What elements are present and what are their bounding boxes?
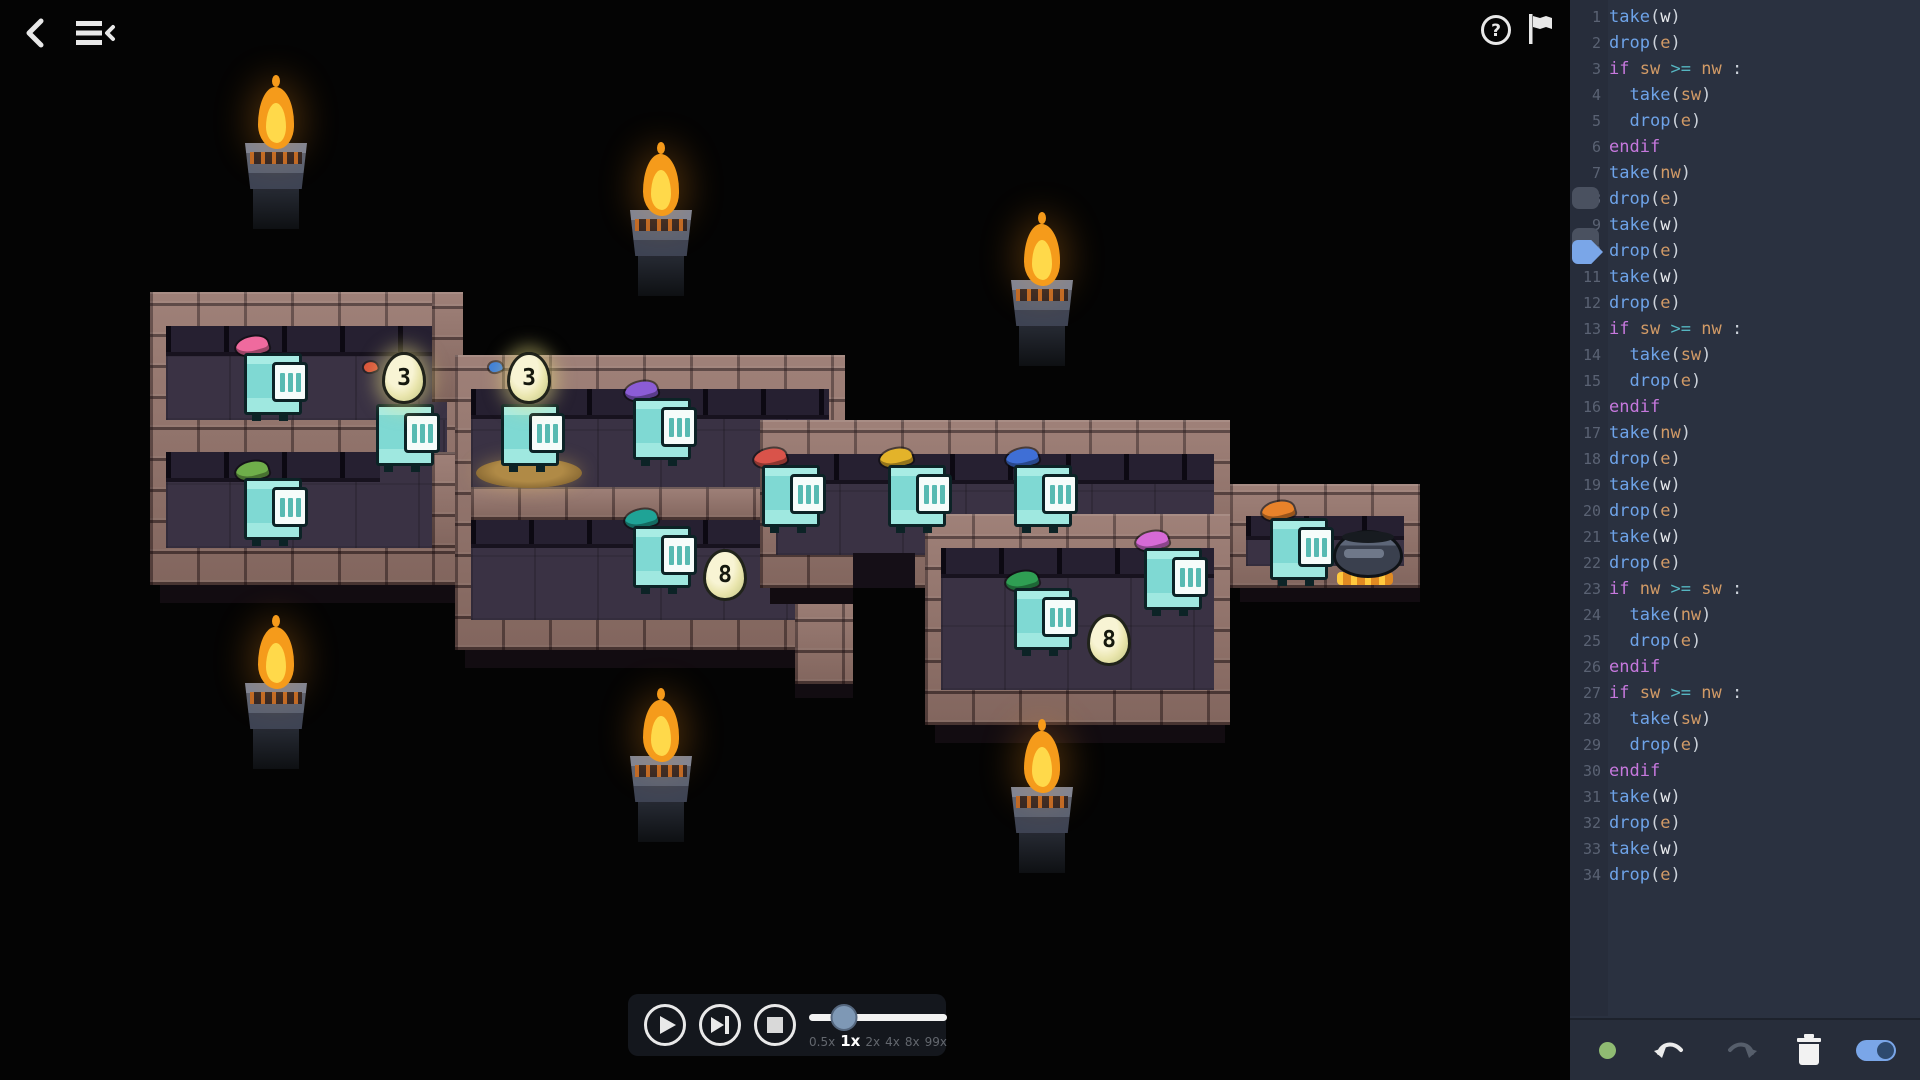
robot-body bbox=[1270, 518, 1328, 580]
code-line-26[interactable]: 26endif bbox=[1570, 654, 1920, 680]
code-text: drop(e) bbox=[1609, 186, 1681, 212]
torch-flame-icon bbox=[643, 700, 679, 762]
code-line-29[interactable]: 29 drop(e) bbox=[1570, 732, 1920, 758]
line-number: 20 bbox=[1570, 498, 1609, 524]
numbered-egg: 8 bbox=[703, 549, 747, 601]
code-text: endif bbox=[1609, 134, 1660, 160]
code-text: drop(e) bbox=[1609, 628, 1701, 654]
code-line-15[interactable]: 15 drop(e) bbox=[1570, 368, 1920, 394]
code-text: take(w) bbox=[1609, 472, 1681, 498]
line-number: 2 bbox=[1570, 30, 1609, 56]
code-line-5[interactable]: 5 drop(e) bbox=[1570, 108, 1920, 134]
game-scene: 3 3 bbox=[0, 0, 1570, 1080]
robot-face bbox=[661, 407, 697, 447]
robot-face bbox=[529, 413, 565, 453]
torch-brazier bbox=[1004, 719, 1080, 884]
code-line-8[interactable]: 8drop(e) bbox=[1570, 186, 1920, 212]
help-button[interactable]: ? bbox=[1479, 13, 1513, 51]
code-line-23[interactable]: 23if nw >= sw : bbox=[1570, 576, 1920, 602]
line-number: 28 bbox=[1570, 706, 1609, 732]
robot-body bbox=[244, 478, 302, 540]
code-line-14[interactable]: 14 take(sw) bbox=[1570, 342, 1920, 368]
robot-body bbox=[376, 404, 434, 466]
playback-bar: 0.5x1x2x4x8x99x bbox=[628, 994, 946, 1056]
torch-brazier bbox=[1004, 212, 1080, 377]
code-line-13[interactable]: 13if sw >= nw : bbox=[1570, 316, 1920, 342]
robot-face bbox=[916, 474, 952, 514]
robot-body bbox=[244, 353, 302, 415]
code-text: endif bbox=[1609, 394, 1660, 420]
carried-egg: 3 bbox=[382, 352, 426, 404]
code-line-11[interactable]: 11take(w) bbox=[1570, 264, 1920, 290]
code-text: drop(e) bbox=[1609, 550, 1681, 576]
code-text: take(sw) bbox=[1609, 342, 1711, 368]
code-line-12[interactable]: 12drop(e) bbox=[1570, 290, 1920, 316]
torch-pedestal bbox=[638, 802, 684, 842]
code-text: take(w) bbox=[1609, 784, 1681, 810]
line-number: 30 bbox=[1570, 758, 1609, 784]
line-number: 19 bbox=[1570, 472, 1609, 498]
torch-brazier bbox=[238, 615, 314, 780]
robot[interactable] bbox=[240, 337, 304, 423]
code-panel: 1take(w)2drop(e)3if sw >= nw :4 take(sw)… bbox=[1570, 0, 1920, 1080]
code-text: endif bbox=[1609, 654, 1660, 680]
code-text: take(sw) bbox=[1609, 706, 1711, 732]
speed-slider[interactable] bbox=[809, 1014, 947, 1021]
redo-icon bbox=[1724, 1037, 1758, 1063]
speed-option-0.5x[interactable]: 0.5x bbox=[809, 1035, 835, 1049]
robot-position-marker bbox=[1572, 187, 1599, 209]
wall-shadow bbox=[465, 650, 845, 668]
line-number: 15 bbox=[1570, 368, 1609, 394]
wall-shadow bbox=[160, 585, 460, 603]
torch-pedestal bbox=[1019, 833, 1065, 873]
torch-spark bbox=[1038, 719, 1046, 731]
robot-face bbox=[790, 474, 826, 514]
robot-face bbox=[272, 362, 308, 402]
code-text: drop(e) bbox=[1609, 862, 1681, 888]
robot[interactable] bbox=[1010, 449, 1074, 535]
torch-pedestal bbox=[253, 729, 299, 769]
status-indicator bbox=[1595, 1038, 1620, 1063]
robot[interactable] bbox=[758, 449, 822, 535]
code-text: endif bbox=[1609, 758, 1660, 784]
speed-option-1x[interactable]: 1x bbox=[840, 1032, 860, 1050]
code-text: if nw >= sw : bbox=[1609, 576, 1742, 602]
line-number: 13 bbox=[1570, 316, 1609, 342]
line-number: 29 bbox=[1570, 732, 1609, 758]
robot-body bbox=[1014, 465, 1072, 527]
step-icon bbox=[711, 1017, 724, 1033]
code-text: take(nw) bbox=[1609, 602, 1711, 628]
code-text: take(sw) bbox=[1609, 82, 1711, 108]
code-line-27[interactable]: 27if sw >= nw : bbox=[1570, 680, 1920, 706]
line-number: 31 bbox=[1570, 784, 1609, 810]
torch-flame-icon bbox=[1024, 731, 1060, 793]
code-line-22[interactable]: 22drop(e) bbox=[1570, 550, 1920, 576]
torch-spark bbox=[1038, 212, 1046, 224]
dungeon-bench bbox=[471, 520, 760, 548]
code-line-18[interactable]: 18drop(e) bbox=[1570, 446, 1920, 472]
torch-basin bbox=[1009, 787, 1075, 833]
code-text: drop(e) bbox=[1609, 290, 1681, 316]
code-line-2[interactable]: 2drop(e) bbox=[1570, 30, 1920, 56]
line-number: 23 bbox=[1570, 576, 1609, 602]
code-text: take(nw) bbox=[1609, 420, 1691, 446]
redo-button[interactable] bbox=[1720, 1033, 1762, 1067]
speed-labels: 0.5x1x2x4x8x99x bbox=[809, 1032, 947, 1050]
dungeon-bench bbox=[776, 454, 1214, 484]
robot[interactable] bbox=[1010, 572, 1074, 658]
line-number: 27 bbox=[1570, 680, 1609, 706]
line-number: 33 bbox=[1570, 836, 1609, 862]
flag-button[interactable] bbox=[1526, 12, 1556, 52]
robot-body bbox=[1014, 588, 1072, 650]
code-line-17[interactable]: 17take(nw) bbox=[1570, 420, 1920, 446]
robot-face bbox=[404, 413, 440, 453]
torch-basin bbox=[628, 210, 694, 256]
code-line-28[interactable]: 28 take(sw) bbox=[1570, 706, 1920, 732]
line-number: 6 bbox=[1570, 134, 1609, 160]
code-text: take(w) bbox=[1609, 4, 1681, 30]
robot-body bbox=[1144, 548, 1202, 610]
robot-body bbox=[633, 398, 691, 460]
code-line-1[interactable]: 1take(w) bbox=[1570, 4, 1920, 30]
torch-pedestal bbox=[253, 189, 299, 229]
robot[interactable] bbox=[629, 382, 693, 468]
line-number: 24 bbox=[1570, 602, 1609, 628]
code-line-7[interactable]: 7take(nw) bbox=[1570, 160, 1920, 186]
torch-brazier bbox=[623, 142, 699, 307]
line-number: 14 bbox=[1570, 342, 1609, 368]
line-number: 21 bbox=[1570, 524, 1609, 550]
code-line-24[interactable]: 24 take(nw) bbox=[1570, 602, 1920, 628]
wall-shadow bbox=[935, 725, 1225, 743]
speed-slider-knob[interactable] bbox=[830, 1004, 857, 1031]
torch-spark bbox=[657, 688, 665, 700]
line-number: 5 bbox=[1570, 108, 1609, 134]
svg-text:?: ? bbox=[1491, 21, 1501, 41]
numbered-egg: 8 bbox=[1087, 614, 1131, 666]
line-number: 3 bbox=[1570, 56, 1609, 82]
code-text: drop(e) bbox=[1609, 238, 1681, 264]
code-text: if sw >= nw : bbox=[1609, 56, 1742, 82]
torch-flame-icon bbox=[643, 154, 679, 216]
robot[interactable] bbox=[884, 449, 948, 535]
code-text: take(w) bbox=[1609, 836, 1681, 862]
code-text: drop(e) bbox=[1609, 108, 1701, 134]
robot[interactable]: 3 bbox=[372, 388, 436, 474]
code-editor[interactable]: 1take(w)2drop(e)3if sw >= nw :4 take(sw)… bbox=[1570, 4, 1920, 888]
toggle-knob bbox=[1877, 1042, 1894, 1059]
play-icon bbox=[660, 1016, 676, 1034]
robot[interactable] bbox=[1266, 502, 1330, 588]
code-line-19[interactable]: 19take(w) bbox=[1570, 472, 1920, 498]
torch-basin bbox=[1009, 280, 1075, 326]
robot-body bbox=[762, 465, 820, 527]
stop-button[interactable] bbox=[754, 1004, 796, 1046]
robot[interactable] bbox=[240, 462, 304, 548]
stop-icon bbox=[767, 1017, 783, 1033]
trash-icon bbox=[1795, 1034, 1823, 1066]
line-number: 7 bbox=[1570, 160, 1609, 186]
line-number: 1 bbox=[1570, 4, 1609, 30]
torch-basin bbox=[243, 143, 309, 189]
editor-toolbar bbox=[1570, 1018, 1920, 1080]
undo-button[interactable] bbox=[1649, 1033, 1691, 1067]
wall-shadow bbox=[1240, 588, 1420, 602]
robot-face bbox=[1042, 474, 1078, 514]
line-number: 25 bbox=[1570, 628, 1609, 654]
code-text: drop(e) bbox=[1609, 30, 1681, 56]
wall-shadow bbox=[795, 684, 853, 698]
robot[interactable] bbox=[1140, 532, 1204, 618]
cauldron bbox=[1329, 525, 1401, 587]
torch-brazier bbox=[238, 75, 314, 240]
line-number: 34 bbox=[1570, 862, 1609, 888]
code-text: if sw >= nw : bbox=[1609, 316, 1742, 342]
robot-body bbox=[888, 465, 946, 527]
step-button[interactable] bbox=[699, 1004, 741, 1046]
speed-option-2x[interactable]: 2x bbox=[865, 1035, 880, 1049]
robot-body bbox=[501, 404, 559, 466]
carried-egg: 3 bbox=[507, 352, 551, 404]
line-number: 17 bbox=[1570, 420, 1609, 446]
dungeon-wall bbox=[471, 487, 760, 520]
doorway-hole bbox=[853, 553, 915, 588]
code-line-30[interactable]: 30endif bbox=[1570, 758, 1920, 784]
speed-option-99x[interactable]: 99x bbox=[925, 1035, 947, 1049]
code-text: take(w) bbox=[1609, 264, 1681, 290]
robot-face bbox=[1172, 557, 1208, 597]
status-dot-icon bbox=[1599, 1042, 1616, 1059]
code-line-9[interactable]: 9take(w) bbox=[1570, 212, 1920, 238]
code-text: take(w) bbox=[1609, 212, 1681, 238]
line-number: 16 bbox=[1570, 394, 1609, 420]
code-line-10[interactable]: 10drop(e) bbox=[1570, 238, 1920, 264]
torch-spark bbox=[272, 75, 280, 87]
code-line-4[interactable]: 4 take(sw) bbox=[1570, 82, 1920, 108]
code-line-25[interactable]: 25 drop(e) bbox=[1570, 628, 1920, 654]
speed-option-4x[interactable]: 4x bbox=[885, 1035, 900, 1049]
code-line-16[interactable]: 16endif bbox=[1570, 394, 1920, 420]
torch-pedestal bbox=[638, 256, 684, 296]
torch-basin bbox=[628, 756, 694, 802]
code-text: take(w) bbox=[1609, 524, 1681, 550]
line-number: 18 bbox=[1570, 446, 1609, 472]
code-text: take(nw) bbox=[1609, 160, 1691, 186]
line-number: 32 bbox=[1570, 810, 1609, 836]
robot-face bbox=[272, 487, 308, 527]
code-line-31[interactable]: 31take(w) bbox=[1570, 784, 1920, 810]
robot-body bbox=[633, 526, 691, 588]
line-number: 4 bbox=[1570, 82, 1609, 108]
robot-face bbox=[661, 535, 697, 575]
code-text: drop(e) bbox=[1609, 368, 1701, 394]
code-text: drop(e) bbox=[1609, 498, 1681, 524]
torch-flame-icon bbox=[1024, 224, 1060, 286]
line-number: 11 bbox=[1570, 264, 1609, 290]
code-line-20[interactable]: 20drop(e) bbox=[1570, 498, 1920, 524]
delete-button[interactable] bbox=[1791, 1030, 1827, 1070]
speed-zone: 0.5x1x2x4x8x99x bbox=[809, 1002, 947, 1048]
code-text: drop(e) bbox=[1609, 810, 1681, 836]
code-line-3[interactable]: 3if sw >= nw : bbox=[1570, 56, 1920, 82]
collapse-menu-button[interactable] bbox=[74, 18, 116, 52]
line-number: 12 bbox=[1570, 290, 1609, 316]
code-text: drop(e) bbox=[1609, 446, 1681, 472]
torch-flame-icon bbox=[258, 87, 294, 149]
torch-pedestal bbox=[1019, 326, 1065, 366]
robot[interactable] bbox=[629, 510, 693, 596]
cauldron-pot bbox=[1333, 530, 1403, 578]
code-line-32[interactable]: 32drop(e) bbox=[1570, 810, 1920, 836]
torch-spark bbox=[272, 615, 280, 627]
speed-option-8x[interactable]: 8x bbox=[905, 1035, 920, 1049]
code-line-34[interactable]: 34drop(e) bbox=[1570, 862, 1920, 888]
code-text: if sw >= nw : bbox=[1609, 680, 1742, 706]
robot-face bbox=[1042, 597, 1078, 637]
torch-spark bbox=[657, 142, 665, 154]
undo-icon bbox=[1653, 1037, 1687, 1063]
torch-brazier bbox=[623, 688, 699, 853]
torch-flame-icon bbox=[258, 627, 294, 689]
code-line-6[interactable]: 6endif bbox=[1570, 134, 1920, 160]
code-line-21[interactable]: 21take(w) bbox=[1570, 524, 1920, 550]
code-text: drop(e) bbox=[1609, 732, 1701, 758]
back-button[interactable] bbox=[20, 16, 50, 54]
robot[interactable]: 3 bbox=[497, 388, 561, 474]
code-line-33[interactable]: 33take(w) bbox=[1570, 836, 1920, 862]
wall-shadow bbox=[770, 588, 853, 604]
torch-basin bbox=[243, 683, 309, 729]
editor-toggle[interactable] bbox=[1856, 1040, 1896, 1061]
play-button[interactable] bbox=[644, 1004, 686, 1046]
line-number: 22 bbox=[1570, 550, 1609, 576]
line-number: 26 bbox=[1570, 654, 1609, 680]
